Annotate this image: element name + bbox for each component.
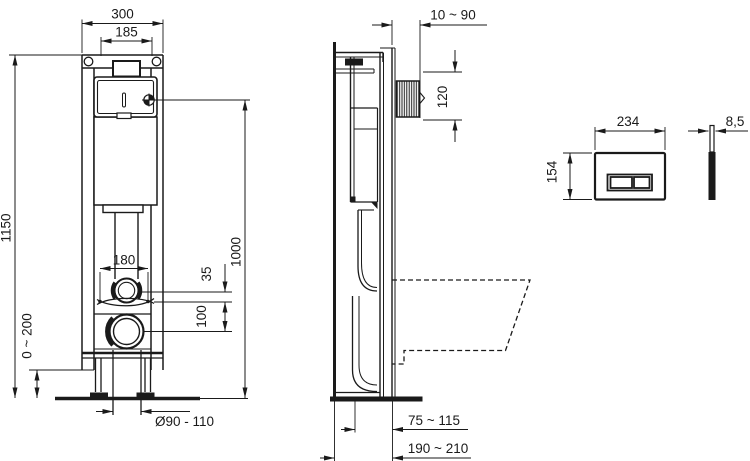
dim-front-frame-height: 1150 — [0, 213, 14, 242]
side-view-dimensions: 10 ~ 90 120 75 ~ 115 190 ~ 210 — [320, 8, 487, 459]
side-pipes — [336, 210, 380, 393]
dim-side-wall-distance: 10 ~ 90 — [430, 8, 475, 23]
flush-button-small — [634, 177, 650, 188]
dim-front-offset-top: 35 — [199, 266, 214, 281]
dim-front-leg-adjust: 0 ~ 200 — [20, 313, 35, 358]
flush-plate-side-view: 8,5 — [688, 114, 748, 200]
technical-drawing-canvas: 300 185 1150 1000 180 35 100 0 ~ 200 Ø90… — [0, 0, 750, 461]
dim-plate-width: 234 — [617, 114, 640, 129]
frame-column — [380, 48, 392, 397]
flush-window — [113, 61, 140, 77]
dim-front-inlet-height: 1000 — [229, 237, 244, 267]
side-base-plate — [330, 397, 423, 402]
top-bracket — [336, 53, 383, 74]
dim-front-tank-width: 185 — [115, 25, 138, 40]
tank-slot — [123, 93, 126, 107]
dim-front-fixing-width: 180 — [113, 253, 136, 268]
plate-side-mount — [710, 126, 714, 153]
technical-drawing: 300 185 1150 1000 180 35 100 0 ~ 200 Ø90… — [0, 0, 750, 461]
mounting-hole-left — [84, 57, 93, 66]
dim-front-overall-width: 300 — [111, 7, 134, 22]
dim-plate-height: 154 — [545, 160, 560, 183]
wc-bowl-outline — [392, 280, 530, 364]
adjustable-legs — [96, 358, 151, 392]
front-view — [55, 55, 248, 415]
mounting-hole-right — [152, 57, 161, 66]
dim-plate-thickness: 8,5 — [726, 114, 745, 129]
dim-side-depth-range: 190 ~ 210 — [408, 441, 468, 456]
flush-plate-front-view: 234 154 — [545, 114, 666, 200]
plate-side-body — [709, 152, 716, 200]
side-view — [330, 42, 530, 461]
tank-bottom-tab — [117, 113, 131, 119]
flush-pipe — [115, 213, 138, 280]
side-tank — [351, 57, 378, 210]
cistern-tank-body — [94, 117, 157, 205]
dim-side-bowl-offset: 75 ~ 115 — [408, 413, 460, 428]
drain-outlet — [94, 314, 151, 349]
drain-pipe-stub — [113, 350, 141, 415]
flush-button-large — [611, 177, 633, 188]
dim-front-outlet-diameter: Ø90 - 110 — [155, 414, 214, 429]
dim-front-offset-bottom: 100 — [194, 305, 209, 328]
dim-side-cutout-height: 120 — [435, 86, 450, 109]
flush-bend — [103, 205, 143, 213]
